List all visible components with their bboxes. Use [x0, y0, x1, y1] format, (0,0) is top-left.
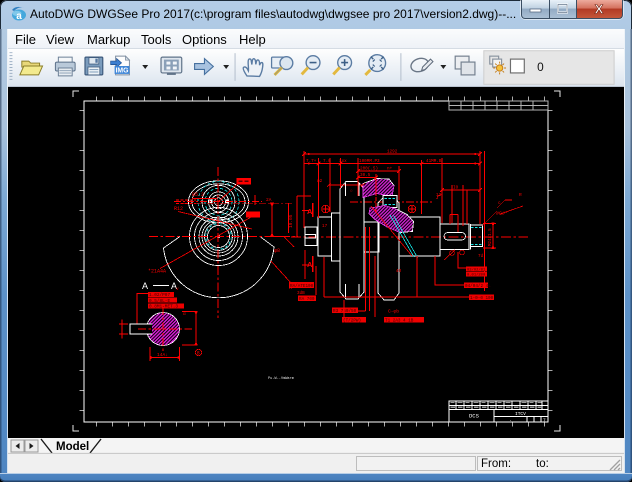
svg-text:X: X [595, 2, 604, 17]
svg-text:v: v [176, 287, 179, 292]
svg-text:7: 7 [543, 418, 546, 424]
svg-text:IMG: IMG [115, 67, 128, 74]
svg-text:α: α [183, 312, 186, 317]
svg-text:ITCV: ITCV [515, 411, 526, 417]
svg-text:7.0: 7.0 [323, 159, 331, 164]
svg-text:4O: 4O [396, 269, 402, 274]
svg-text:19.05: 19.05 [288, 214, 294, 228]
svg-text:○: ○ [350, 189, 353, 194]
svg-text:200(.5): 200(.5) [360, 167, 378, 172]
svg-text:From:: From: [481, 458, 511, 470]
svg-text:T1 2A3 4 1B: T1 2A3 4 1B [385, 319, 414, 324]
svg-text:#C#*: #C#* [496, 211, 508, 217]
svg-text:RA 700: RA 700 [299, 297, 315, 302]
svg-text:8: 8 [197, 351, 200, 357]
svg-text:100MM.P3: 100MM.P3 [359, 159, 380, 164]
svg-text:1292: 1292 [387, 150, 398, 155]
svg-text:to:: to: [536, 458, 549, 470]
svg-text:C-φb: C-φb [388, 309, 399, 315]
svg-text:φ2: φ2 [317, 179, 323, 184]
svg-text:R: R [519, 192, 522, 198]
svg-text:1.02/P07: 1.02/P07 [149, 293, 170, 298]
svg-text:3dB: 3dB [297, 291, 305, 296]
svg-text:DCS: DCS [469, 413, 480, 420]
svg-text:(T/2PW): (T/2PW) [343, 319, 361, 324]
svg-text:RA/ATE100: RA/ATE100 [290, 284, 314, 289]
svg-text:R3 750/50: R3 750/50 [333, 309, 357, 314]
svg-text:Pu-W--VmWarm: Pu-W--VmWarm [268, 376, 294, 381]
svg-text:n+: n+ [387, 167, 393, 172]
svg-text:B5.2: B5.2 [192, 192, 204, 198]
svg-text:0: 0 [537, 60, 544, 74]
svg-text:03/02/81: 03/02/81 [467, 268, 486, 273]
svg-text:0.5/8L-E: 0.5/8L-E [149, 299, 170, 304]
svg-text:17: 17 [322, 224, 328, 229]
svg-text:0.01/200: 0.01/200 [467, 273, 486, 278]
svg-text:IO: IO [453, 186, 459, 191]
svg-text:R12: R12 [174, 206, 183, 212]
svg-text:41MM.B: 41MM.B [426, 159, 442, 164]
svg-text:A: A [142, 281, 148, 291]
svg-text:2A: 2A [266, 197, 272, 203]
svg-text:04/04/2 4L: 04/04/2 4L [465, 284, 491, 289]
svg-text:c: c [498, 201, 501, 206]
svg-text:*21A4A: *21A4A [148, 269, 166, 275]
svg-text:a: a [16, 11, 22, 22]
svg-text:0.8M1-MET.3: 0.8M1-MET.3 [149, 305, 178, 310]
svg-text:Model: Model [56, 441, 89, 453]
svg-text:M24x1.5: M24x1.5 [489, 228, 493, 246]
svg-text:φ8: φ8 [274, 248, 280, 254]
svg-text:30.5: 30.5 [360, 173, 371, 178]
svg-text:14A↓: 14A↓ [157, 352, 168, 358]
svg-text:7d: 7d [478, 254, 484, 259]
svg-text:.: . [509, 418, 512, 423]
svg-text:1-0-0 100: 1-0-0 100 [470, 296, 494, 301]
